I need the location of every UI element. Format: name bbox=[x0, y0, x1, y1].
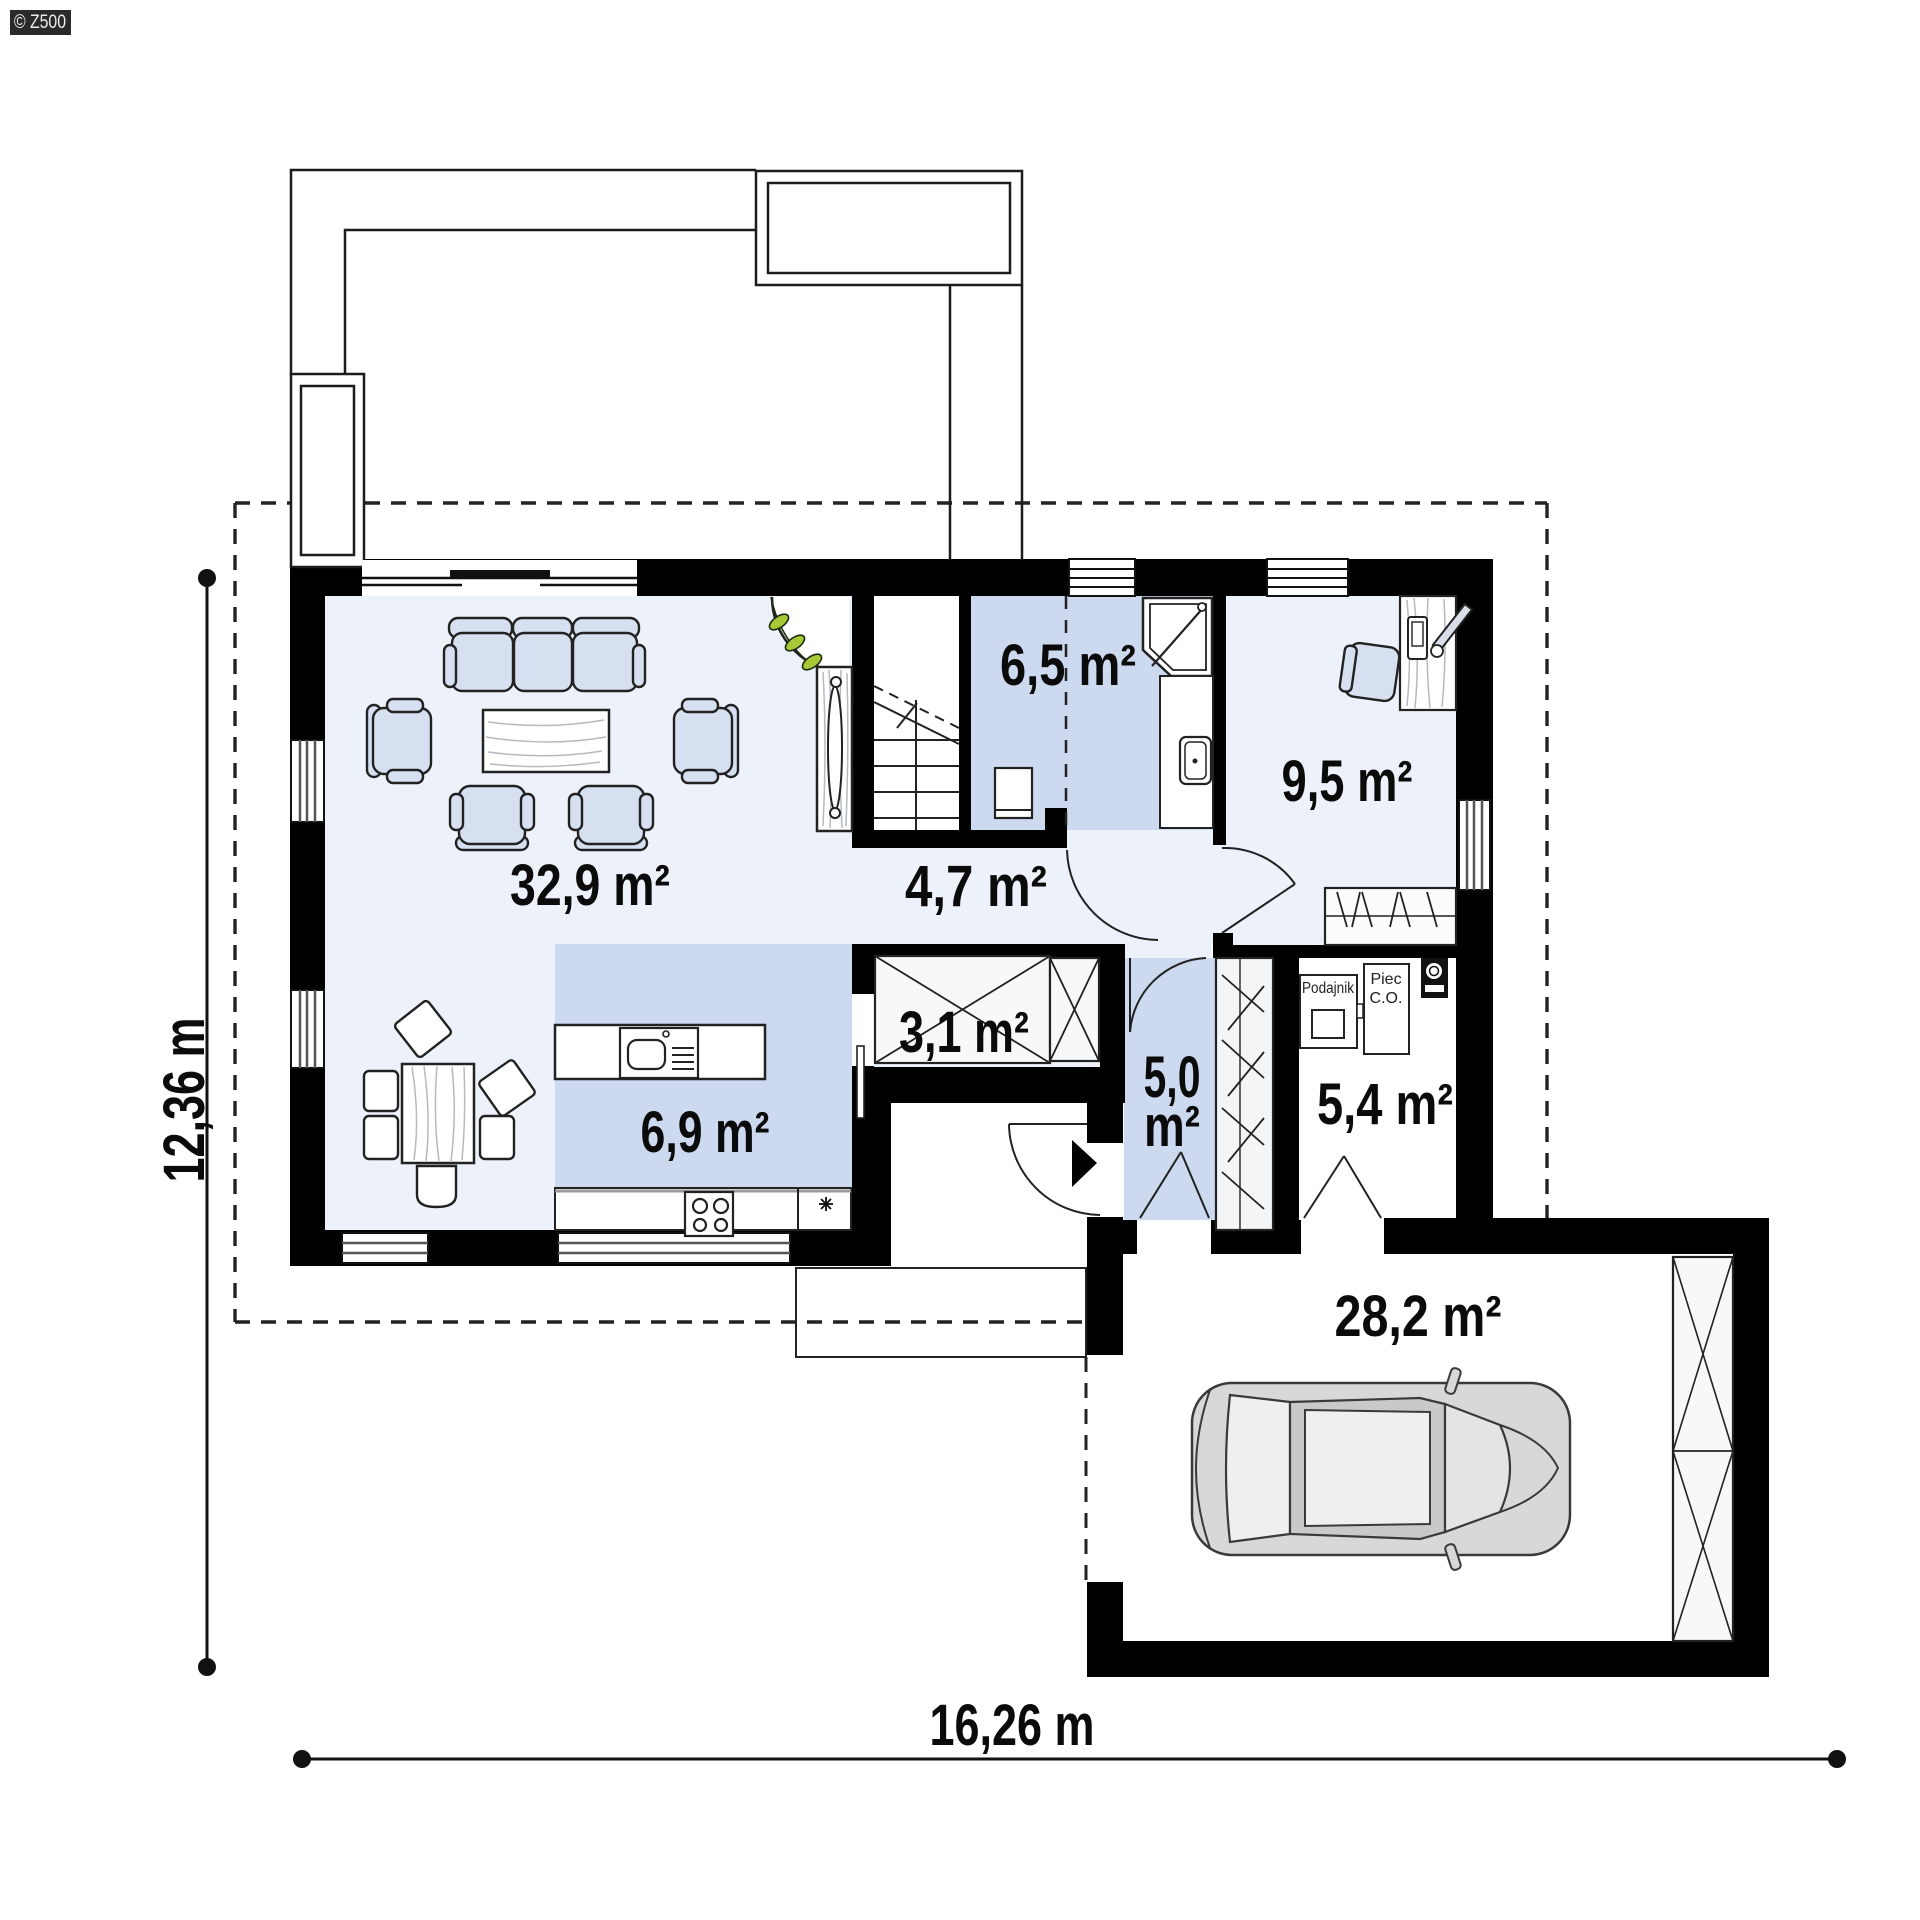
svg-text:16,26 m: 16,26 m bbox=[930, 1693, 1095, 1758]
svg-text:© Z500: © Z500 bbox=[14, 12, 66, 33]
svg-text:5,4 m²: 5,4 m² bbox=[1317, 1072, 1453, 1137]
svg-text:Podajnik: Podajnik bbox=[1302, 980, 1355, 997]
svg-text:6,5 m²: 6,5 m² bbox=[1000, 633, 1136, 698]
svg-text:3,1 m²: 3,1 m² bbox=[899, 1000, 1029, 1065]
svg-text:Piec: Piec bbox=[1370, 971, 1401, 988]
svg-text:32,9 m²: 32,9 m² bbox=[510, 853, 670, 918]
svg-text:m²: m² bbox=[1144, 1094, 1200, 1159]
svg-text:12,36 m: 12,36 m bbox=[152, 1018, 217, 1183]
svg-text:6,9 m²: 6,9 m² bbox=[641, 1100, 770, 1165]
svg-text:4,7 m²: 4,7 m² bbox=[905, 854, 1047, 919]
svg-text:9,5 m²: 9,5 m² bbox=[1282, 749, 1413, 814]
svg-text:28,2 m²: 28,2 m² bbox=[1335, 1284, 1502, 1349]
svg-text:C.O.: C.O. bbox=[1370, 990, 1403, 1007]
